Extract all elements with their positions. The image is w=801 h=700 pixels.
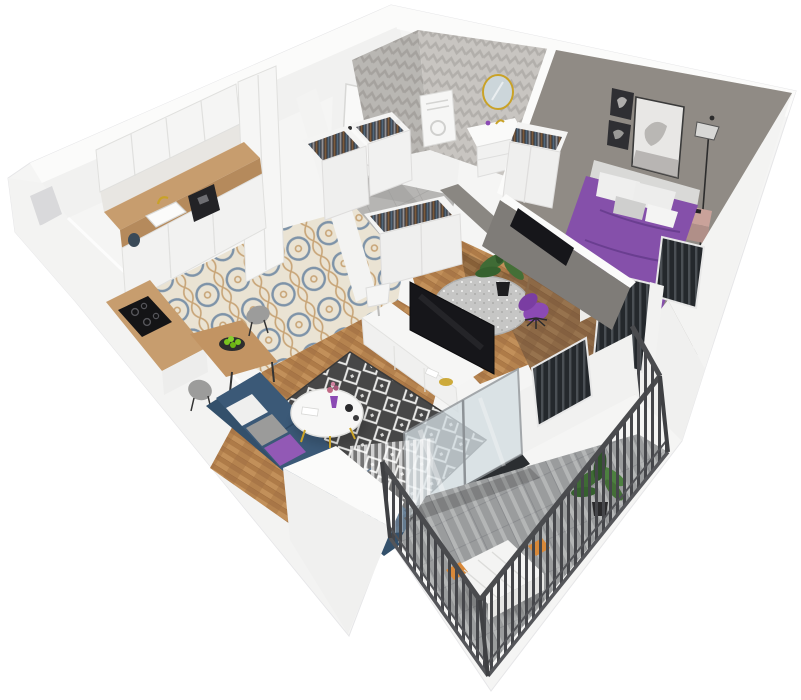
table-bowl	[345, 404, 353, 412]
lamp-stem	[378, 306, 379, 316]
apple	[228, 336, 234, 342]
flower	[331, 382, 335, 386]
apple	[230, 342, 236, 348]
gold-tray	[439, 378, 453, 386]
flower	[333, 385, 338, 390]
utility-cabinet	[420, 90, 456, 147]
kettle	[128, 233, 140, 247]
flower	[327, 387, 333, 393]
floorplan-canvas	[0, 0, 801, 700]
vanity-bottle	[486, 121, 491, 126]
apple	[235, 339, 241, 345]
wardrobe-decor-bottle	[396, 120, 401, 125]
floor-lamp-top	[710, 116, 715, 121]
plant-pot	[496, 282, 510, 296]
table-bowl	[353, 415, 359, 421]
floorplan-render	[0, 0, 801, 700]
